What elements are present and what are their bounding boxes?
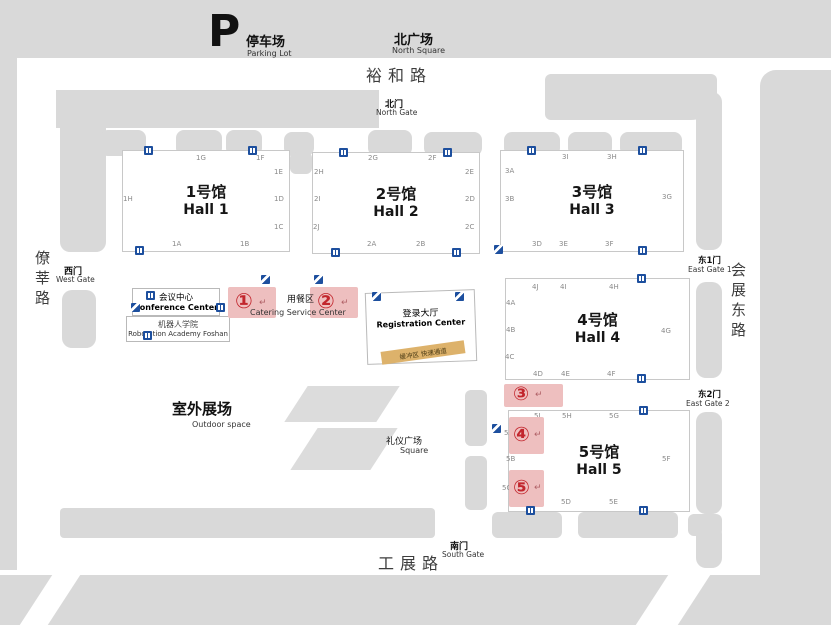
marker-3-arrow: ↵ xyxy=(535,391,543,400)
west-gate-label-en: West Gate xyxy=(56,275,95,284)
restroom-icon xyxy=(443,148,452,157)
hall-1-title: 1号馆 Hall 1 xyxy=(123,151,289,251)
east-building-bar xyxy=(696,92,722,250)
gate-label-2E: 2E xyxy=(465,168,474,176)
gate-label-3G: 3G xyxy=(662,193,672,201)
east-road-label: 会展东路 xyxy=(728,262,749,342)
gate-label-2C: 2C xyxy=(465,223,474,231)
gate-label-4J: 4J xyxy=(532,283,539,291)
south-boundary xyxy=(492,512,562,538)
restroom-icon xyxy=(135,246,144,255)
marker-4: ④ xyxy=(513,424,530,444)
outdoor-label-cn: 室外展场 xyxy=(172,398,232,419)
academy-label-cn: 机器人学院 xyxy=(127,319,229,330)
gate-label-3F: 3F xyxy=(605,240,613,248)
parking-label-en: Parking Lot xyxy=(247,49,292,58)
gate-label-3B: 3B xyxy=(505,195,514,203)
gate-label-4B: 4B xyxy=(506,326,515,334)
gate-label-1B: 1B xyxy=(240,240,249,248)
square-label-en: Square xyxy=(400,446,428,455)
east-gate1-label-en: East Gate 1 xyxy=(688,265,732,274)
restroom-icon xyxy=(638,246,647,255)
east-building-bar xyxy=(696,282,722,378)
gate-label-4E: 4E xyxy=(561,370,570,378)
parking-symbol: P xyxy=(208,6,240,57)
south-boundary xyxy=(60,508,435,538)
plaza-shape xyxy=(284,386,399,422)
gate-label-3H: 3H xyxy=(607,153,617,161)
gate-label-1C: 1C xyxy=(274,223,283,231)
west-road-label: 僚莘路 xyxy=(32,250,53,310)
hall-3-name-en: Hall 3 xyxy=(569,202,614,220)
restroom-icon xyxy=(339,148,348,157)
marker-5-arrow: ↵ xyxy=(534,484,542,493)
gate-label-2A: 2A xyxy=(367,240,376,248)
gate-label-2B: 2B xyxy=(416,240,425,248)
gate-label-1H: 1H xyxy=(123,195,133,203)
marker-1: ① xyxy=(235,291,253,312)
east-road-edge xyxy=(760,70,831,625)
robotation-academy-box: 机器人学院 Robotation Academy Foshan xyxy=(126,316,230,342)
gate-label-1E: 1E xyxy=(274,168,283,176)
gate-label-2H: 2H xyxy=(314,168,324,176)
escalator-icon xyxy=(314,275,323,284)
north-gate-label-en: North Gate xyxy=(376,108,417,117)
restroom-icon xyxy=(146,291,155,300)
marker-2-arrow: ↵ xyxy=(341,299,349,308)
escalator-icon xyxy=(492,424,501,433)
escalator-icon xyxy=(455,292,464,301)
gate-label-1D: 1D xyxy=(274,195,284,203)
restroom-icon xyxy=(143,331,152,340)
north-square-label-en: North Square xyxy=(392,46,445,55)
exhibition-center-map: P 停车场 Parking Lot 北广场 North Square 裕和路 北… xyxy=(0,0,831,625)
marker-1-arrow: ↵ xyxy=(259,299,267,308)
gate-label-2G: 2G xyxy=(368,154,378,162)
gate-label-4F: 4F xyxy=(607,370,615,378)
canopy-shape xyxy=(290,152,312,174)
hall-1-name-cn: 1号馆 xyxy=(186,183,226,202)
gate-label-1G: 1G xyxy=(196,154,206,162)
gate-label-3E: 3E xyxy=(559,240,568,248)
plaza-shape xyxy=(290,428,397,470)
east-gate2-label-en: East Gate 2 xyxy=(686,399,730,408)
restroom-icon xyxy=(526,506,535,515)
north-road-label: 裕和路 xyxy=(366,62,432,86)
catering-label-cn: 用餐区 xyxy=(287,292,314,305)
gate-label-4A: 4A xyxy=(506,299,515,307)
hall-3-name-cn: 3号馆 xyxy=(572,183,612,202)
hall-1-name-en: Hall 1 xyxy=(183,202,228,220)
west-building-bar xyxy=(60,90,106,252)
hall-4-name-en: Hall 4 xyxy=(575,330,620,348)
restroom-icon xyxy=(639,506,648,515)
gate-label-2F: 2F xyxy=(428,154,436,162)
restroom-icon xyxy=(216,303,225,312)
gate-label-4D: 4D xyxy=(533,370,543,378)
gate-label-5F: 5F xyxy=(662,455,670,463)
hall-2: 2号馆 Hall 2 xyxy=(312,152,480,254)
south-gate-label-en: South Gate xyxy=(442,550,484,559)
gate-label-5D: 5D xyxy=(561,498,571,506)
restroom-icon xyxy=(638,146,647,155)
escalator-icon xyxy=(261,275,270,284)
gate-label-4H: 4H xyxy=(609,283,619,291)
parking-label-cn: 停车场 xyxy=(246,31,285,50)
hall-2-name-cn: 2号馆 xyxy=(376,185,416,204)
restroom-icon xyxy=(637,274,646,283)
gate-label-3D: 3D xyxy=(532,240,542,248)
restroom-icon xyxy=(639,406,648,415)
hall-4-name-cn: 4号馆 xyxy=(577,311,617,330)
escalator-icon xyxy=(372,292,381,301)
gate-label-1F: 1F xyxy=(256,154,264,162)
hall-5-name-cn: 5号馆 xyxy=(579,443,619,462)
marker-3: ③ xyxy=(513,385,529,404)
wall-shape xyxy=(465,390,487,446)
gate-label-2J: 2J xyxy=(313,223,320,231)
gate-label-5E: 5E xyxy=(609,498,618,506)
gate-label-2D: 2D xyxy=(465,195,475,203)
north-boundary-right xyxy=(545,74,717,120)
east-building-bar xyxy=(696,412,722,514)
south-boundary xyxy=(578,512,678,538)
gate-label-3A: 3A xyxy=(505,167,514,175)
hall-1: 1号馆 Hall 1 xyxy=(122,150,290,252)
south-road-label: 工展路 xyxy=(378,550,444,574)
restroom-icon xyxy=(248,146,257,155)
restroom-icon xyxy=(527,146,536,155)
west-building-bar xyxy=(62,290,96,348)
south-boundary xyxy=(688,514,722,536)
escalator-icon xyxy=(131,303,140,312)
gate-label-5H: 5H xyxy=(562,412,572,420)
wall-shape xyxy=(465,456,487,510)
marker-5: ⑤ xyxy=(513,477,530,497)
hall-3-title: 3号馆 Hall 3 xyxy=(501,151,683,251)
gate-label-5G: 5G xyxy=(609,412,619,420)
gate-label-4I: 4I xyxy=(560,283,567,291)
restroom-icon xyxy=(452,248,461,257)
gate-label-4G: 4G xyxy=(661,327,671,335)
gate-label-1A: 1A xyxy=(172,240,181,248)
gate-label-5B: 5B xyxy=(506,455,515,463)
hall-2-title: 2号馆 Hall 2 xyxy=(313,153,479,253)
south-road-band xyxy=(0,575,831,625)
restroom-icon xyxy=(331,248,340,257)
marker-4-arrow: ↵ xyxy=(534,431,542,440)
outdoor-label-en: Outdoor space xyxy=(192,420,251,429)
hall-5-name-en: Hall 5 xyxy=(576,462,621,480)
gate-label-3I: 3I xyxy=(562,153,569,161)
conference-label-en: Conference Center xyxy=(133,303,219,312)
escalator-icon xyxy=(494,245,503,254)
hall-2-name-en: Hall 2 xyxy=(373,204,418,222)
restroom-icon xyxy=(637,374,646,383)
gate-label-4C: 4C xyxy=(505,353,514,361)
west-road-edge xyxy=(0,58,17,570)
marker-2: ② xyxy=(317,291,335,312)
gate-label-2I: 2I xyxy=(314,195,321,203)
restroom-icon xyxy=(144,146,153,155)
hall-3: 3号馆 Hall 3 xyxy=(500,150,684,252)
